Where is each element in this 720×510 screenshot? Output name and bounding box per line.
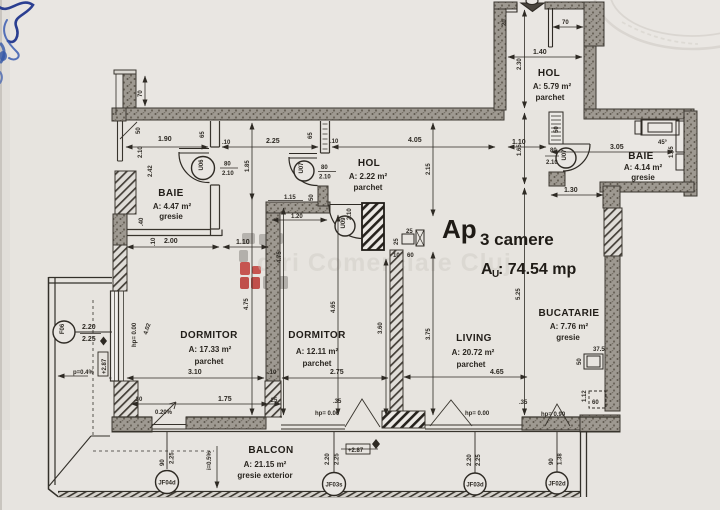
svg-text:JF03s: JF03s: [325, 483, 343, 489]
svg-text:gresie: gresie: [159, 212, 183, 221]
svg-text:1.65: 1.65: [517, 144, 523, 156]
svg-text:hp= 0.90: hp= 0.90: [541, 412, 566, 418]
svg-text:A: 12.11 m²: A: 12.11 m²: [296, 347, 339, 356]
svg-text:60: 60: [407, 253, 414, 259]
svg-text:2.20: 2.20: [325, 453, 331, 465]
svg-text:2.42: 2.42: [148, 165, 154, 177]
svg-text:A: 5.79 m²: A: 5.79 m²: [533, 82, 572, 91]
svg-text:2.25: 2.25: [170, 452, 176, 464]
svg-text:45°: 45°: [658, 140, 668, 146]
svg-text:2.75: 2.75: [330, 369, 344, 376]
svg-text:DORMITOR: DORMITOR: [288, 330, 346, 341]
svg-text:LIVING: LIVING: [456, 333, 492, 344]
svg-text:hp= 0.00: hp= 0.00: [132, 322, 138, 347]
svg-text:2.25: 2.25: [476, 454, 482, 466]
svg-text:5.25: 5.25: [516, 288, 522, 300]
svg-text:2.30: 2.30: [517, 58, 523, 70]
svg-text:50: 50: [309, 194, 315, 201]
svg-text:.35: .35: [333, 399, 342, 405]
svg-text:3.10: 3.10: [188, 369, 202, 376]
svg-text:i=0.5%: i=0.5%: [207, 450, 213, 470]
svg-text:3.75: 3.75: [426, 328, 432, 340]
svg-text:parchet: parchet: [354, 183, 383, 192]
svg-text:F06: F06: [60, 323, 66, 334]
svg-text:1.75: 1.75: [218, 396, 232, 403]
svg-text:2.10: 2.10: [347, 208, 353, 220]
svg-text:25: 25: [394, 238, 400, 245]
svg-text:diri Comerciale Cluj: diri Comerciale Cluj: [257, 249, 512, 277]
svg-text:2.15: 2.15: [426, 163, 432, 175]
svg-text:90: 90: [160, 459, 166, 466]
svg-text:2.00: 2.00: [164, 238, 178, 245]
svg-text:BAIE: BAIE: [158, 188, 184, 199]
svg-text:gresie exterior: gresie exterior: [237, 471, 292, 480]
svg-text:50: 50: [577, 358, 583, 365]
svg-text:BUCATARIE: BUCATARIE: [538, 308, 599, 319]
svg-text:3 camere: 3 camere: [480, 230, 554, 249]
svg-text:A: 4.47 m²: A: 4.47 m²: [153, 202, 192, 211]
svg-text:hp= 0.00: hp= 0.00: [465, 411, 490, 417]
svg-text:2.25: 2.25: [82, 336, 96, 343]
svg-text:20: 20: [502, 19, 508, 26]
svg-text:U07: U07: [562, 149, 568, 161]
svg-text:parchet: parchet: [303, 359, 332, 368]
svg-text:hp= 0.00: hp= 0.00: [315, 411, 340, 417]
svg-text:A: 21.15 m²: A: 21.15 m²: [244, 460, 287, 469]
svg-text:0.20%: 0.20%: [155, 410, 173, 416]
svg-text:2.20: 2.20: [82, 324, 96, 331]
svg-text:2.10: 2.10: [319, 175, 331, 181]
svg-text:25: 25: [406, 229, 413, 235]
svg-text:60: 60: [592, 400, 599, 406]
svg-text:.10: .10: [268, 370, 277, 376]
svg-text:80: 80: [550, 148, 557, 154]
svg-text:4.65: 4.65: [331, 301, 337, 313]
svg-text:2.25: 2.25: [335, 453, 341, 465]
svg-text:10: 10: [393, 253, 400, 259]
svg-text:1.10: 1.10: [236, 239, 250, 246]
svg-text:.25: .25: [269, 398, 278, 404]
svg-text:4.65: 4.65: [490, 369, 504, 376]
svg-text:70: 70: [138, 90, 144, 97]
svg-text:65: 65: [200, 131, 206, 138]
svg-text:4.05: 4.05: [408, 137, 422, 144]
svg-text:2.20: 2.20: [467, 454, 473, 466]
svg-text:A: 17.33 m²: A: 17.33 m²: [189, 345, 232, 354]
svg-text:90: 90: [549, 458, 555, 465]
svg-text:2.10: 2.10: [546, 160, 558, 166]
svg-text:.10: .10: [151, 237, 157, 246]
svg-text:A: 7.76 m²: A: 7.76 m²: [550, 322, 589, 331]
svg-text:+2.87: +2.87: [102, 358, 108, 374]
svg-text:JF02d: JF02d: [548, 482, 566, 488]
svg-text:1.40: 1.40: [533, 49, 547, 56]
svg-text:1.15: 1.15: [284, 195, 296, 201]
svg-text:50: 50: [554, 126, 560, 133]
svg-text:4.75: 4.75: [244, 298, 250, 310]
svg-text:HOL: HOL: [358, 158, 380, 169]
svg-text:A: 4.14 m²: A: 4.14 m²: [624, 163, 663, 172]
svg-text:JF03d: JF03d: [466, 483, 484, 489]
svg-text:gresie: gresie: [556, 333, 580, 342]
svg-text:parchet: parchet: [536, 93, 565, 102]
svg-text:U06: U06: [199, 159, 205, 171]
svg-text:4.75: 4.75: [277, 251, 283, 263]
svg-text:1.30: 1.30: [564, 187, 578, 194]
svg-text:80: 80: [321, 165, 328, 171]
svg-text:3.05: 3.05: [610, 144, 624, 151]
svg-text:BAIE: BAIE: [628, 151, 654, 162]
svg-text:3.60: 3.60: [378, 322, 384, 334]
svg-text:parchet: parchet: [457, 360, 486, 369]
svg-text:1.20: 1.20: [291, 214, 303, 220]
svg-text:50: 50: [136, 127, 142, 134]
svg-text:DORMITOR: DORMITOR: [180, 330, 238, 341]
svg-text:.35: .35: [519, 400, 528, 406]
svg-text:1.45: 1.45: [669, 146, 675, 158]
svg-text:1.12: 1.12: [582, 390, 588, 402]
svg-text:p=0.4%: p=0.4%: [73, 370, 95, 376]
svg-text:U07: U07: [299, 162, 305, 174]
svg-text:2.10: 2.10: [138, 146, 144, 158]
svg-text:parchet: parchet: [195, 357, 224, 366]
svg-text:2.10: 2.10: [222, 171, 234, 177]
svg-text:80: 80: [224, 162, 231, 168]
svg-text:A: 2.22 m²: A: 2.22 m²: [349, 172, 388, 181]
svg-text:.10: .10: [222, 140, 231, 146]
svg-text:HOL: HOL: [538, 68, 560, 79]
svg-text:1.90: 1.90: [158, 136, 172, 143]
svg-text:2.25: 2.25: [266, 138, 280, 145]
svg-text:1.85: 1.85: [245, 160, 251, 172]
svg-text:: 74.54 mp: : 74.54 mp: [498, 261, 576, 278]
svg-text:JF04d: JF04d: [158, 481, 176, 487]
svg-text:37.5: 37.5: [593, 347, 605, 353]
svg-text:.10: .10: [330, 139, 339, 145]
svg-text:.40: .40: [139, 217, 145, 226]
svg-text:gresie: gresie: [631, 173, 655, 182]
svg-text:70: 70: [562, 20, 569, 26]
svg-text:.30: .30: [134, 397, 143, 403]
svg-text:65: 65: [308, 132, 314, 139]
svg-text:1.38: 1.38: [558, 453, 564, 465]
svg-text:BALCON: BALCON: [248, 445, 293, 456]
svg-text:Ap: Ap: [442, 214, 477, 244]
svg-text:A: 20.72 m²: A: 20.72 m²: [452, 348, 495, 357]
